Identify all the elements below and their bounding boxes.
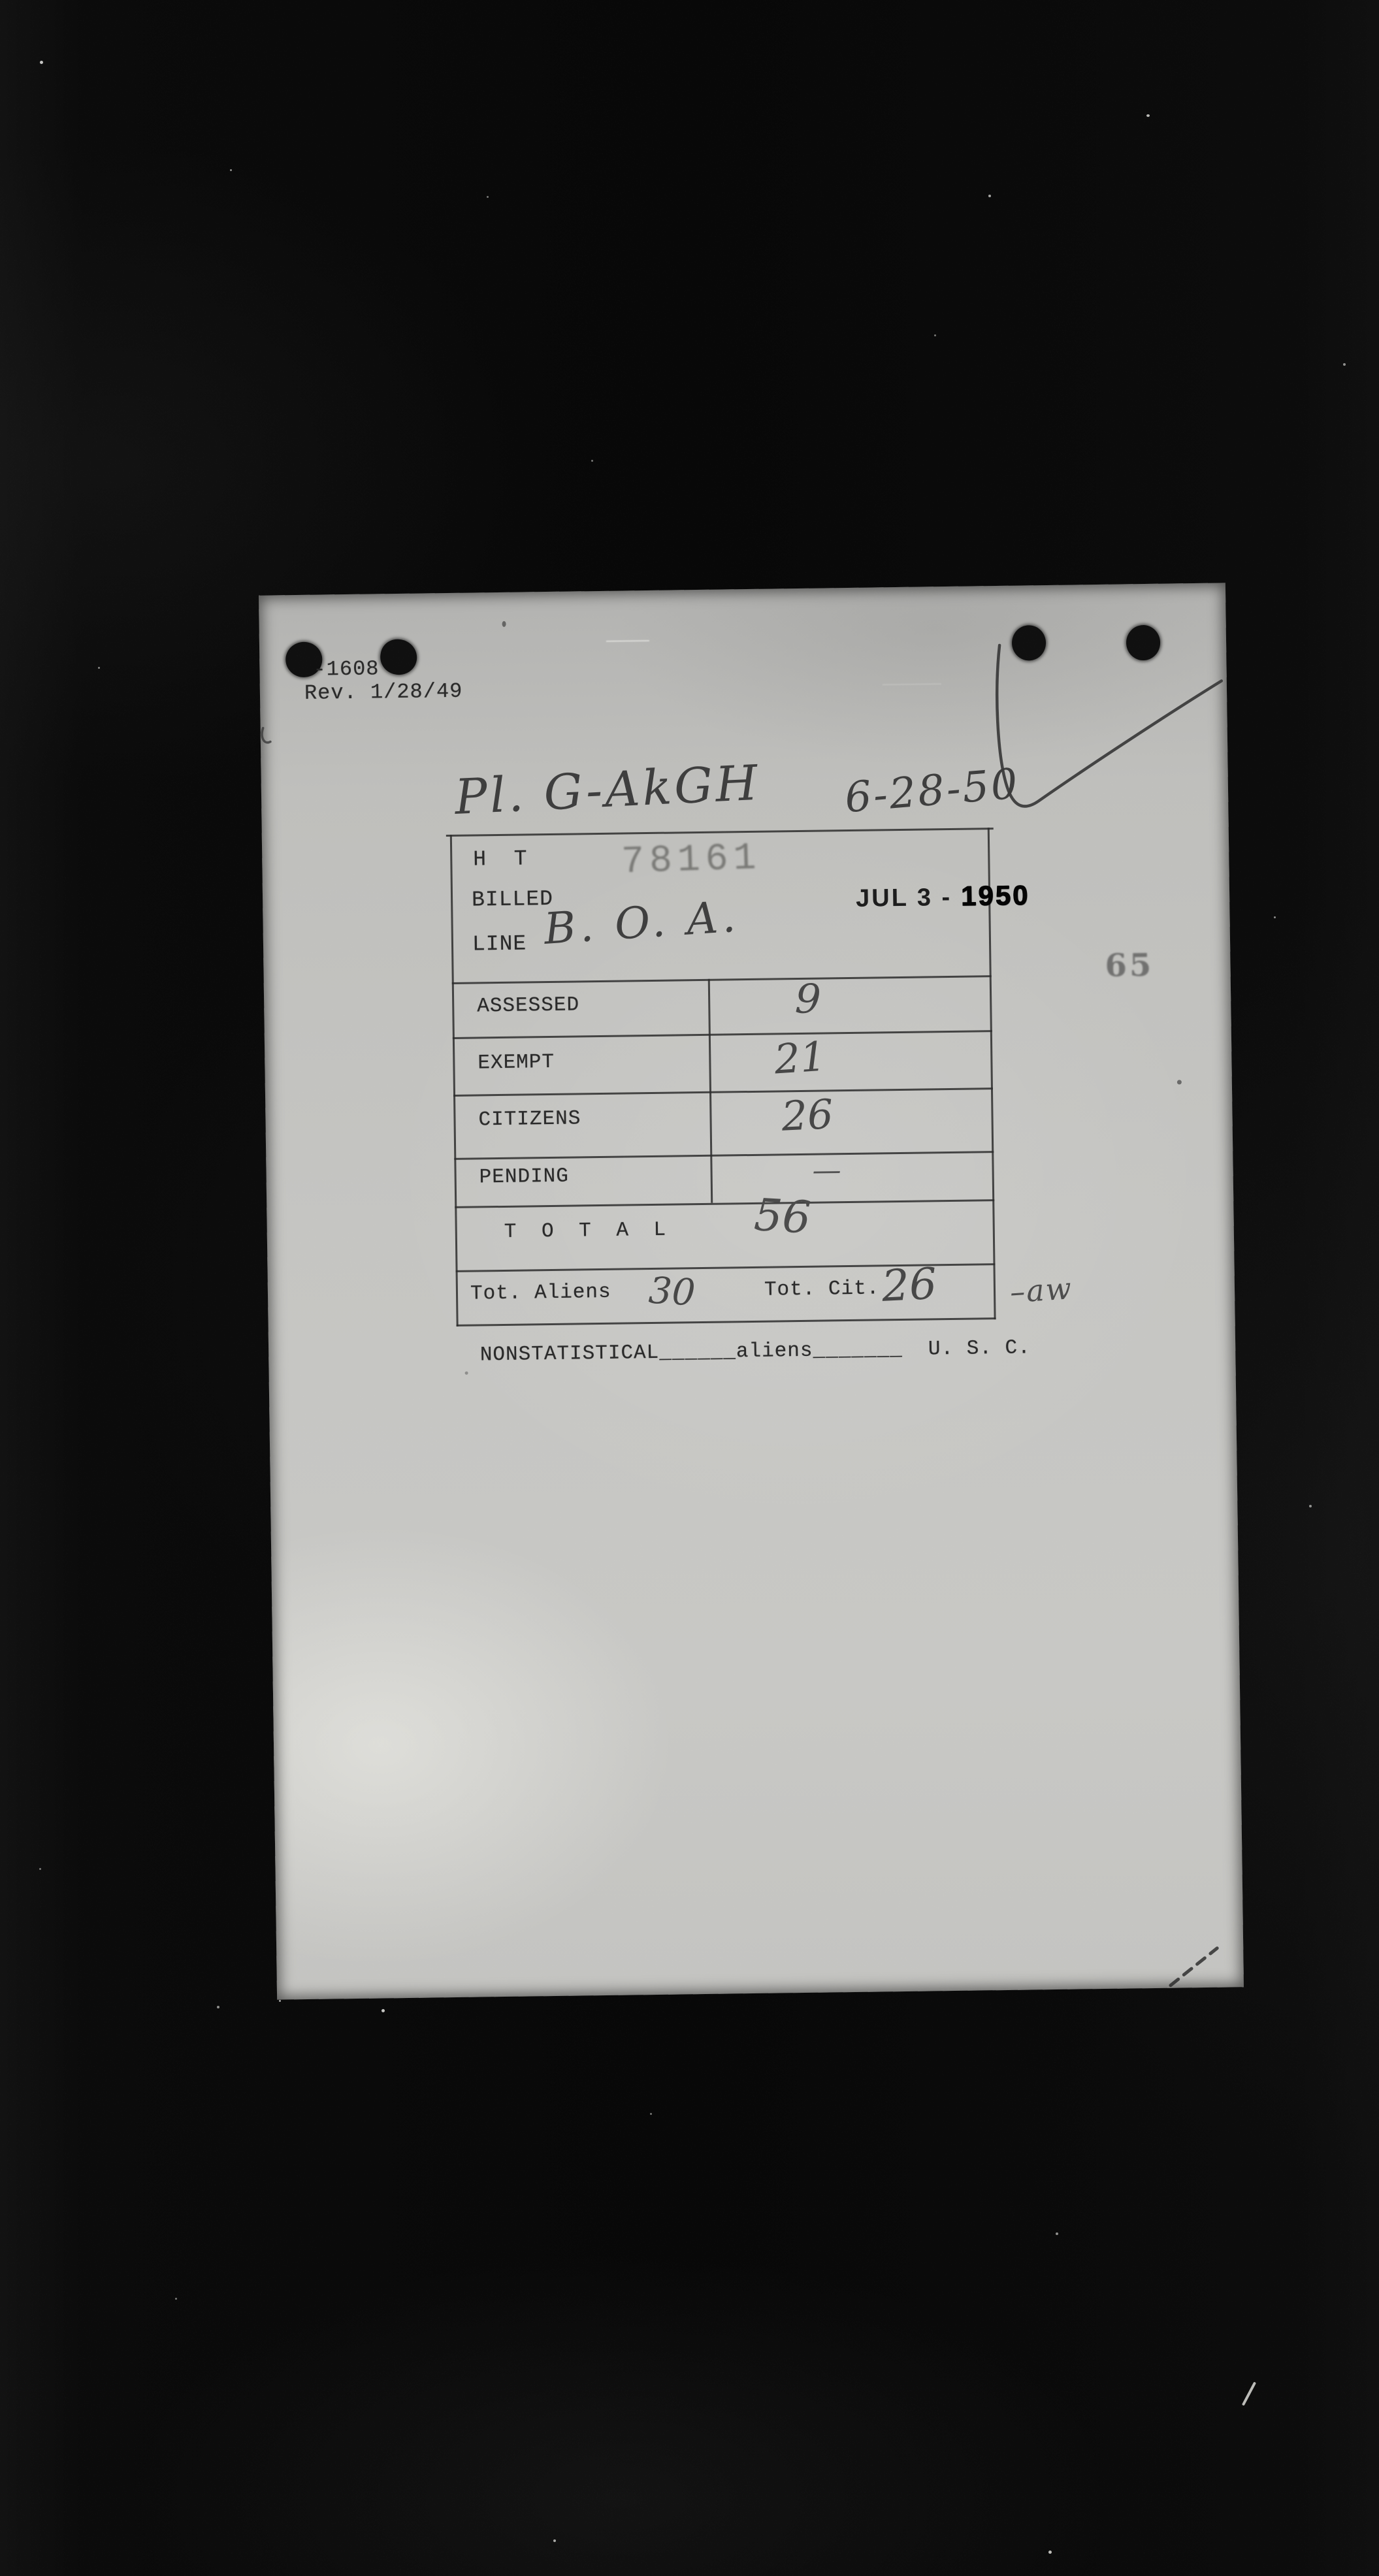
date-stamp-month: JUL 3 - bbox=[856, 884, 961, 912]
form-number: -1608 bbox=[313, 656, 379, 681]
film-speck bbox=[650, 2113, 652, 2115]
date-received-stamp: JUL 3 - 1950 bbox=[856, 879, 1030, 912]
form-revision: Rev. 1/28/49 bbox=[304, 679, 463, 705]
film-speck bbox=[1343, 363, 1346, 366]
row-label-exempt: EXEMPT bbox=[478, 1051, 555, 1075]
footer-line: NONSTATISTICAL______aliens_______ U. S. … bbox=[442, 1325, 1031, 1379]
total-label: T O T A L bbox=[504, 1219, 673, 1244]
corner-dash-mark bbox=[1170, 1948, 1218, 1986]
film-speck bbox=[40, 61, 43, 64]
film-speck bbox=[39, 1868, 41, 1870]
tot-aliens-value: 30 bbox=[647, 1270, 696, 1315]
film-speck bbox=[988, 195, 991, 197]
table-border-top bbox=[446, 828, 994, 837]
film-speck bbox=[381, 2009, 385, 2012]
margin-page-number: 65 bbox=[1105, 947, 1154, 984]
line-value-handwritten: B. O. A. bbox=[542, 891, 741, 954]
film-speck bbox=[934, 334, 936, 336]
row-value-pending: — bbox=[812, 1153, 841, 1187]
line-label: LINE bbox=[472, 931, 527, 956]
film-speck bbox=[98, 667, 100, 669]
table-line bbox=[453, 1030, 992, 1039]
footer-blank-2: _______ bbox=[813, 1338, 903, 1362]
billed-label: BILLED bbox=[472, 887, 553, 912]
paper-document: -1608 Rev. 1/28/49 Pl. G-AkGH 6-28-50 65 bbox=[259, 583, 1244, 1999]
side-annotation: –aw bbox=[1009, 1270, 1073, 1310]
table-line bbox=[455, 1199, 994, 1208]
serial-number-stamp: 78161 bbox=[621, 837, 762, 884]
table-border-bottom bbox=[457, 1317, 996, 1327]
nonstatistical-label: NONSTATISTICAL bbox=[480, 1342, 660, 1367]
row-label-citizens: CITIZENS bbox=[478, 1107, 581, 1131]
table-line bbox=[453, 1087, 993, 1097]
footer-blank-1: ______ bbox=[659, 1340, 736, 1364]
film-speck bbox=[1309, 1505, 1312, 1507]
punch-hole bbox=[1126, 625, 1161, 661]
film-speck bbox=[1048, 2551, 1052, 2554]
tot-aliens-label: Tot. Aliens bbox=[470, 1281, 611, 1306]
film-speck bbox=[175, 2298, 177, 2300]
row-label-assessed: ASSESSED bbox=[477, 993, 579, 1018]
handwritten-route: Pl. G-AkGH bbox=[453, 755, 762, 826]
edge-pen-hook bbox=[262, 728, 270, 743]
film-speck bbox=[217, 2006, 219, 2008]
film-speck bbox=[230, 169, 232, 171]
scratch bbox=[883, 683, 941, 685]
film-speck bbox=[553, 2539, 556, 2542]
row-label-pending: PENDING bbox=[479, 1165, 569, 1189]
ht-label: H T bbox=[473, 846, 528, 871]
footer-usc-label: U. S. C. bbox=[903, 1336, 1031, 1361]
film-speck bbox=[279, 2000, 281, 2002]
tot-cit-label: Tot. Cit. bbox=[764, 1277, 880, 1301]
total-value: 56 bbox=[753, 1189, 812, 1244]
date-stamp-year: 1950 bbox=[960, 879, 1030, 910]
footer-aliens-label: aliens bbox=[736, 1340, 813, 1364]
film-speck bbox=[487, 196, 489, 198]
film-speck bbox=[1146, 114, 1150, 117]
tot-cit-value: 26 bbox=[881, 1259, 938, 1312]
row-value-citizens: 26 bbox=[781, 1090, 834, 1140]
microfilm-scan-frame: -1608 Rev. 1/28/49 Pl. G-AkGH 6-28-50 65 bbox=[0, 0, 1379, 2576]
row-value-exempt: 21 bbox=[773, 1032, 828, 1083]
film-scratch-slash bbox=[1242, 2381, 1256, 2406]
table-line bbox=[452, 975, 992, 984]
table-border-left bbox=[450, 835, 459, 1327]
film-speck bbox=[591, 460, 593, 462]
film-speck bbox=[1274, 916, 1276, 918]
film-speck bbox=[1056, 2232, 1058, 2235]
handwritten-date: 6-28-50 bbox=[843, 760, 1021, 822]
punch-hole bbox=[378, 637, 419, 677]
scratch bbox=[606, 640, 649, 642]
fleck bbox=[502, 621, 506, 627]
fleck bbox=[1177, 1080, 1182, 1084]
tally-table: H T 78161 BILLED JUL 3 - 1950 LINE B. O.… bbox=[450, 828, 996, 1327]
row-value-assessed: 9 bbox=[794, 974, 822, 1023]
punch-hole bbox=[1012, 625, 1046, 661]
table-line bbox=[454, 1151, 994, 1160]
